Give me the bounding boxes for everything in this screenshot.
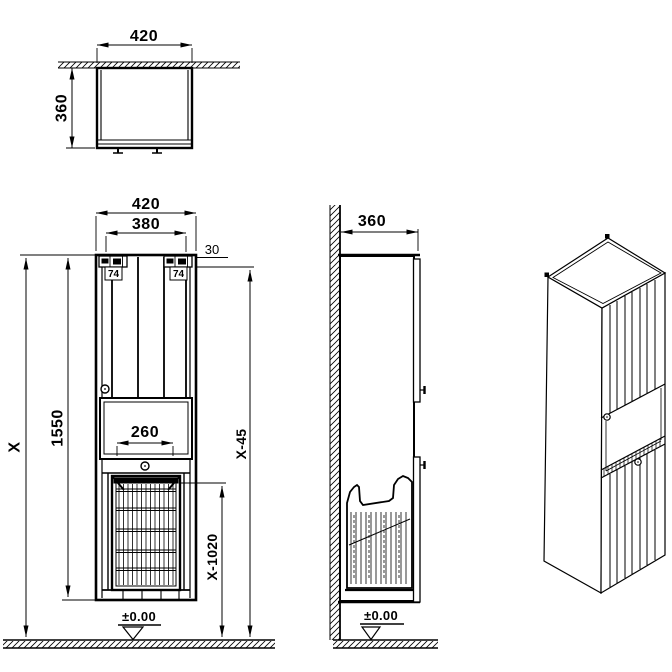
dim-top-depth: 360 (54, 68, 96, 148)
side-door-upper (414, 259, 421, 402)
dim-label-side-depth: 360 (358, 213, 386, 230)
upper-door-knob (101, 385, 109, 393)
top-view: 420 360 (54, 28, 241, 153)
dim-label-30: 30 (205, 242, 219, 257)
dim-label-x1020: X-1020 (204, 534, 220, 581)
datum-front: ±0.00 (118, 609, 161, 640)
side-door-lower (414, 457, 421, 602)
side-knob-lower (420, 461, 425, 469)
laundry-basket-front (112, 476, 180, 590)
dim-label-1550: 1550 (50, 409, 67, 447)
front-view: 74 74 260 (3, 196, 275, 648)
top-view-cabinet-outline (97, 68, 192, 148)
datum-label-side: ±0.00 (364, 608, 398, 623)
cabinet-technical-drawing: 420 360 74 (0, 0, 672, 672)
iso-knob-upper (604, 414, 610, 420)
dim-side-depth: 360 (341, 213, 418, 251)
dim-label-top-width: 420 (130, 28, 158, 45)
technical-drawing-canvas: 420 360 74 (0, 0, 672, 672)
dim-front-inner-width: 380 (106, 216, 186, 252)
open-niche: 260 (100, 398, 192, 459)
dim-label-x45: X-45 (233, 429, 249, 460)
dim-label-front-inner-width: 380 (132, 216, 160, 233)
side-floor (333, 640, 438, 648)
side-wall (330, 205, 340, 640)
iso-view (544, 234, 665, 593)
dim-front-height-1550: 1550 (50, 258, 97, 600)
dim-door-height-x45: X-45 (196, 267, 254, 637)
bracket-label-right: 74 (173, 269, 185, 280)
datum-side: ±0.00 (360, 608, 404, 640)
front-floor (3, 640, 275, 648)
dim-label-top-depth: 360 (54, 94, 71, 122)
side-view: 360 ±0.00 (330, 205, 438, 648)
datum-label-front: ±0.00 (122, 609, 156, 624)
dim-label-x: X (7, 441, 24, 452)
iso-knob-lower (635, 459, 641, 465)
dim-label-front-width: 420 (132, 196, 160, 213)
bracket-label-left: 74 (108, 269, 120, 280)
side-knob-upper (420, 386, 425, 394)
dim-top-width: 420 (97, 28, 192, 63)
dim-label-niche-width: 260 (131, 424, 159, 441)
lower-door-knob (141, 462, 149, 470)
dim-door-top-offset: 30 (195, 242, 228, 258)
